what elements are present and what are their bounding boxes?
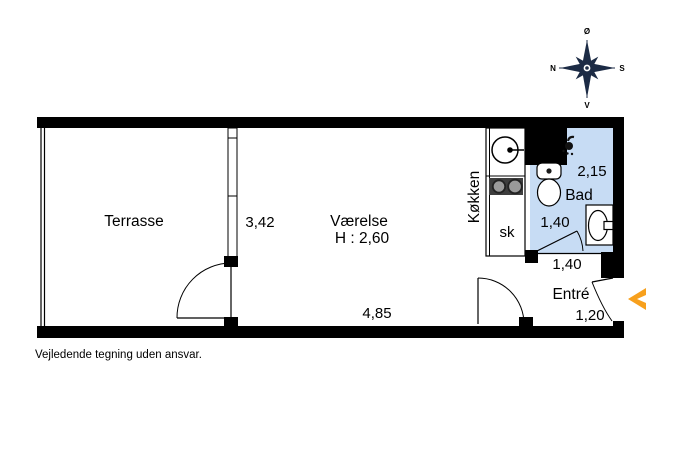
toilet-bowl-icon [538,179,561,206]
front-door-leaf [592,278,613,282]
wall-entre-top-right [601,252,624,278]
room-depth-dim: 3,42 [245,214,274,231]
wall-room-door-block [519,317,533,326]
compass-label-west: V [584,101,590,110]
room-ceiling-height: H : 2,60 [335,230,390,247]
cooktop-burner-left [493,180,505,192]
room-label: Værelse [330,213,388,230]
wall-right-lower [613,321,624,338]
compass-star [560,40,615,98]
entre-depth-dim: 1,20 [575,307,604,324]
terrace-door [177,263,231,318]
wall-shaft-block [525,117,567,165]
room-door-arc [478,278,524,324]
floorplan-page: Ø N S V [0,0,687,457]
shower-drop-1 [562,150,564,152]
bath-width-dim: 1,40 [540,214,569,231]
toilet-button [546,168,551,173]
shower-head [565,142,573,150]
compass-label-north: N [550,64,556,73]
compass-hub-core [585,66,589,70]
entre-width-dim: 1,40 [552,256,581,273]
bath-sink-tap [604,222,613,230]
wall-counter-end-block [525,250,538,263]
terrace-door-arc [177,263,231,318]
bath-depth-dim: 2,15 [577,163,606,180]
compass-rose: Ø N S V [550,27,625,110]
entre-label: Entré [552,286,589,303]
bath-label: Bad [565,187,593,204]
kitchen-closet-label: sk [500,224,516,241]
room-entre-door [478,278,533,326]
cooktop-burner-right [508,180,522,194]
window-frame [228,128,237,257]
compass-label-south: S [619,64,625,73]
shower-drop-3 [571,153,573,155]
kitchen-label: Køkken [466,171,483,224]
terrace-label: Terrasse [104,213,163,230]
room-width-dim: 4,85 [362,305,391,322]
disclaimer-text: Vejledende tegning uden ansvar. [35,349,202,361]
compass-label-east: Ø [584,27,590,36]
entrance-arrow-icon [628,288,646,310]
floorplan-drawing: Ø N S V [0,0,687,457]
terrace-window [228,128,237,257]
wall-window-bottom-block [224,256,238,267]
shower-drop-2 [566,152,568,154]
wall-bottom [37,326,624,338]
